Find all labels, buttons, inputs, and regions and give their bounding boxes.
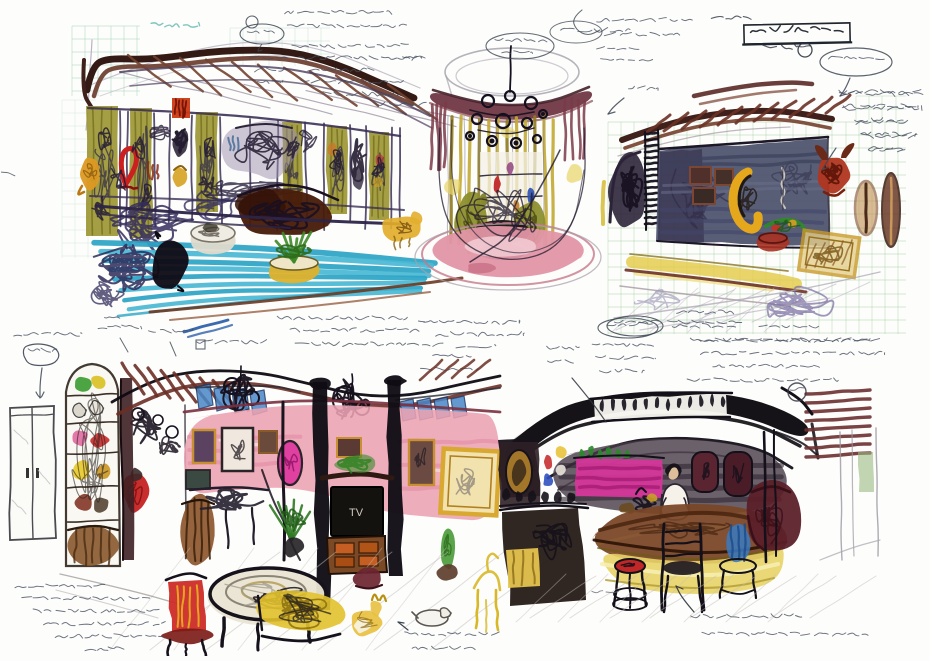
svg-text:TV: TV bbox=[349, 507, 364, 519]
